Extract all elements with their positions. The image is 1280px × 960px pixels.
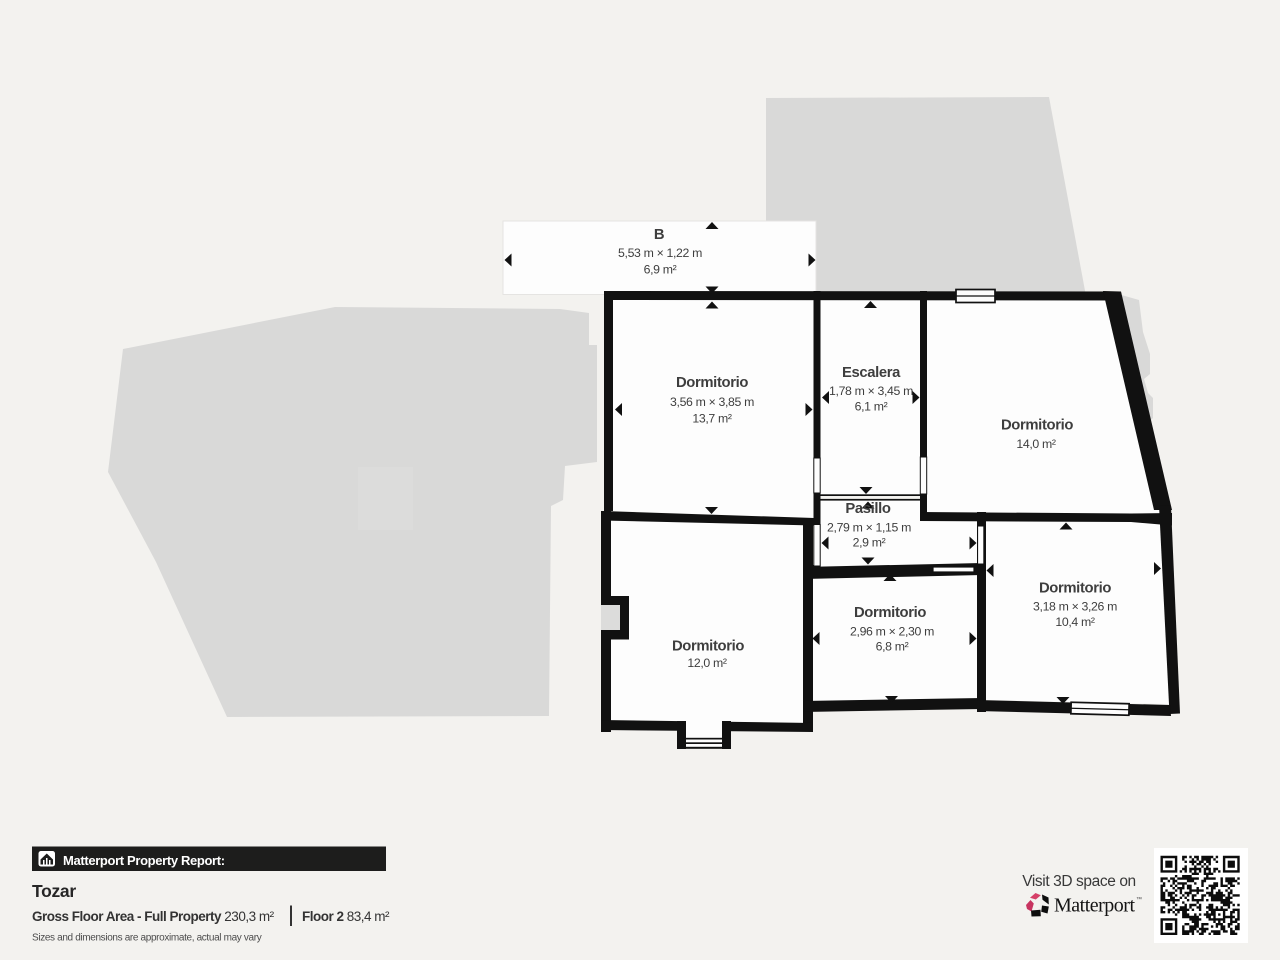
svg-text:14,0 m²: 14,0 m² <box>1016 437 1055 451</box>
svg-text:2,96 m × 2,30 m: 2,96 m × 2,30 m <box>850 625 934 639</box>
svg-text:13,7 m²: 13,7 m² <box>692 412 731 426</box>
svg-text:Dormitorio: Dormitorio <box>1001 418 1073 434</box>
svg-text:Matterport: Matterport <box>1054 895 1135 917</box>
svg-text:Sizes and dimensions are appro: Sizes and dimensions are approximate, ac… <box>32 933 262 944</box>
svg-text:Floor 2 83,4 m²: Floor 2 83,4 m² <box>302 909 390 924</box>
svg-text:Visit 3D space on: Visit 3D space on <box>1022 873 1136 890</box>
svg-text:3,56 m × 3,85 m: 3,56 m × 3,85 m <box>670 395 754 409</box>
svg-text:3,18 m × 3,26 m: 3,18 m × 3,26 m <box>1033 600 1117 614</box>
svg-text:Dormitorio: Dormitorio <box>1039 581 1111 597</box>
svg-text:B: B <box>654 227 665 243</box>
svg-text:2,9 m²: 2,9 m² <box>853 536 886 550</box>
svg-text:1,78 m × 3,45 m: 1,78 m × 3,45 m <box>829 384 913 398</box>
svg-text:12,0 m²: 12,0 m² <box>687 656 726 670</box>
svg-text:Escalera: Escalera <box>842 365 901 381</box>
svg-text:6,1 m²: 6,1 m² <box>855 400 888 414</box>
svg-text:Gross Floor Area - Full Proper: Gross Floor Area - Full Property 230,3 m… <box>32 909 275 924</box>
svg-text:10,4 m²: 10,4 m² <box>1055 615 1094 629</box>
svg-text:Matterport Property Report:: Matterport Property Report: <box>63 853 225 868</box>
svg-text:2,79 m × 1,15 m: 2,79 m × 1,15 m <box>827 521 911 535</box>
svg-text:Tozar: Tozar <box>32 881 76 901</box>
svg-text:Dormitorio: Dormitorio <box>672 639 744 655</box>
svg-text:™: ™ <box>1136 896 1142 903</box>
svg-text:6,9 m²: 6,9 m² <box>644 263 677 277</box>
svg-text:Pasillo: Pasillo <box>845 501 891 517</box>
svg-text:5,53 m × 1,22 m: 5,53 m × 1,22 m <box>618 246 702 260</box>
svg-text:Dormitorio: Dormitorio <box>676 375 748 391</box>
svg-text:Dormitorio: Dormitorio <box>854 605 926 621</box>
svg-text:6,8 m²: 6,8 m² <box>876 640 909 654</box>
